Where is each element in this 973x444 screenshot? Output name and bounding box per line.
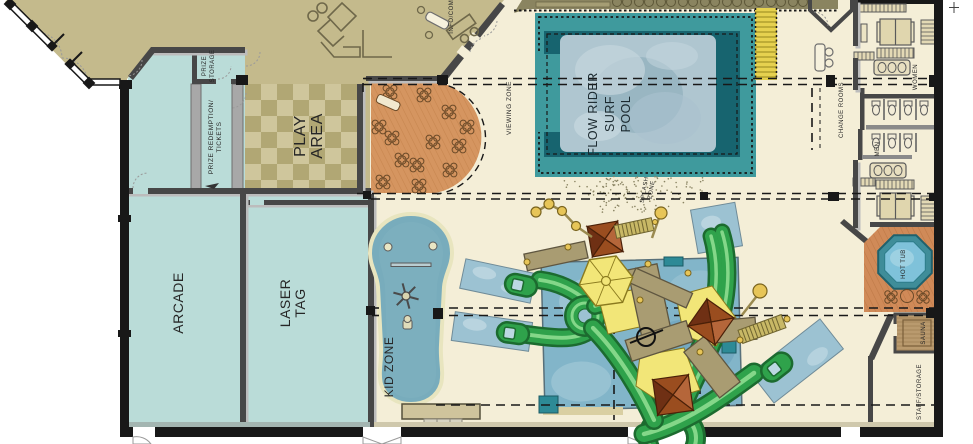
svg-text:INFO/COMM: INFO/COMM [449,0,455,34]
svg-text:PLAY: PLAY [292,115,309,157]
svg-text:STAFF/STORAGE: STAFF/STORAGE [917,364,923,420]
svg-text:STORAGE: STORAGE [210,50,216,83]
svg-text:MEN: MEN [875,142,881,157]
svg-text:SURF: SURF [603,96,617,132]
svg-text:WOMEN: WOMEN [913,64,919,90]
svg-text:PRIZE REDEMPTION/: PRIZE REDEMPTION/ [208,100,215,175]
svg-text:SAUNA: SAUNA [921,321,927,344]
svg-text:POOL: POOL [619,96,633,133]
svg-text:KID ZONE: KID ZONE [382,337,396,398]
svg-text:VIEWING ZONE: VIEWING ZONE [506,81,513,135]
svg-text:HOT TUB: HOT TUB [901,249,907,279]
svg-text:ARCADE: ARCADE [170,272,186,333]
svg-text:LASER: LASER [277,279,293,327]
svg-text:TAG: TAG [292,288,308,317]
svg-text:FLOW RIDER: FLOW RIDER [586,72,600,155]
svg-text:AREA: AREA [309,113,326,159]
svg-text:CHANGE ROOMS: CHANGE ROOMS [839,82,845,138]
svg-text:TICKETS: TICKETS [216,121,223,152]
svg-text:PRIZE: PRIZE [202,56,208,76]
